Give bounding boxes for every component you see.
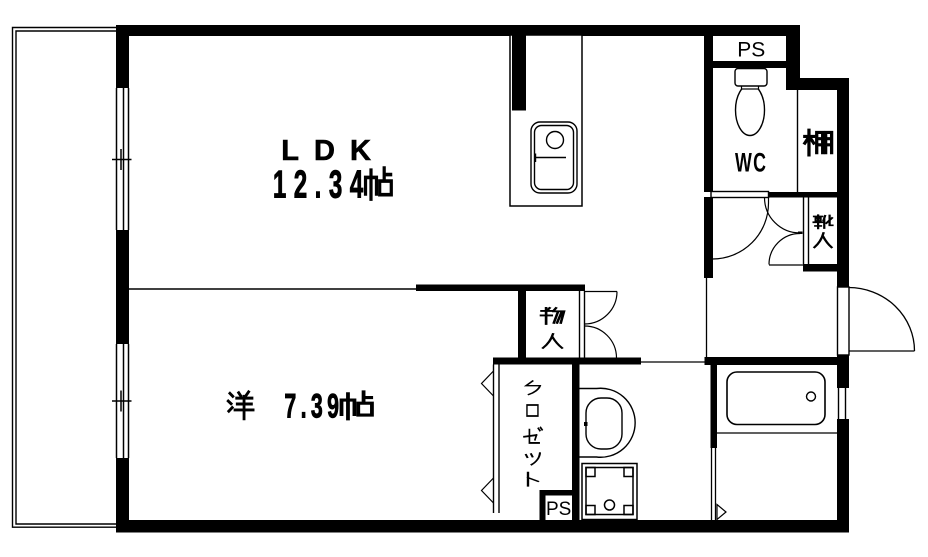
svg-text:12.34: 12.34 (273, 162, 371, 205)
svg-text:7.39: 7.39 (284, 387, 343, 425)
svg-text:WC: WC (735, 147, 767, 178)
svg-text:PS: PS (737, 39, 765, 62)
svg-text:PS: PS (546, 499, 571, 520)
